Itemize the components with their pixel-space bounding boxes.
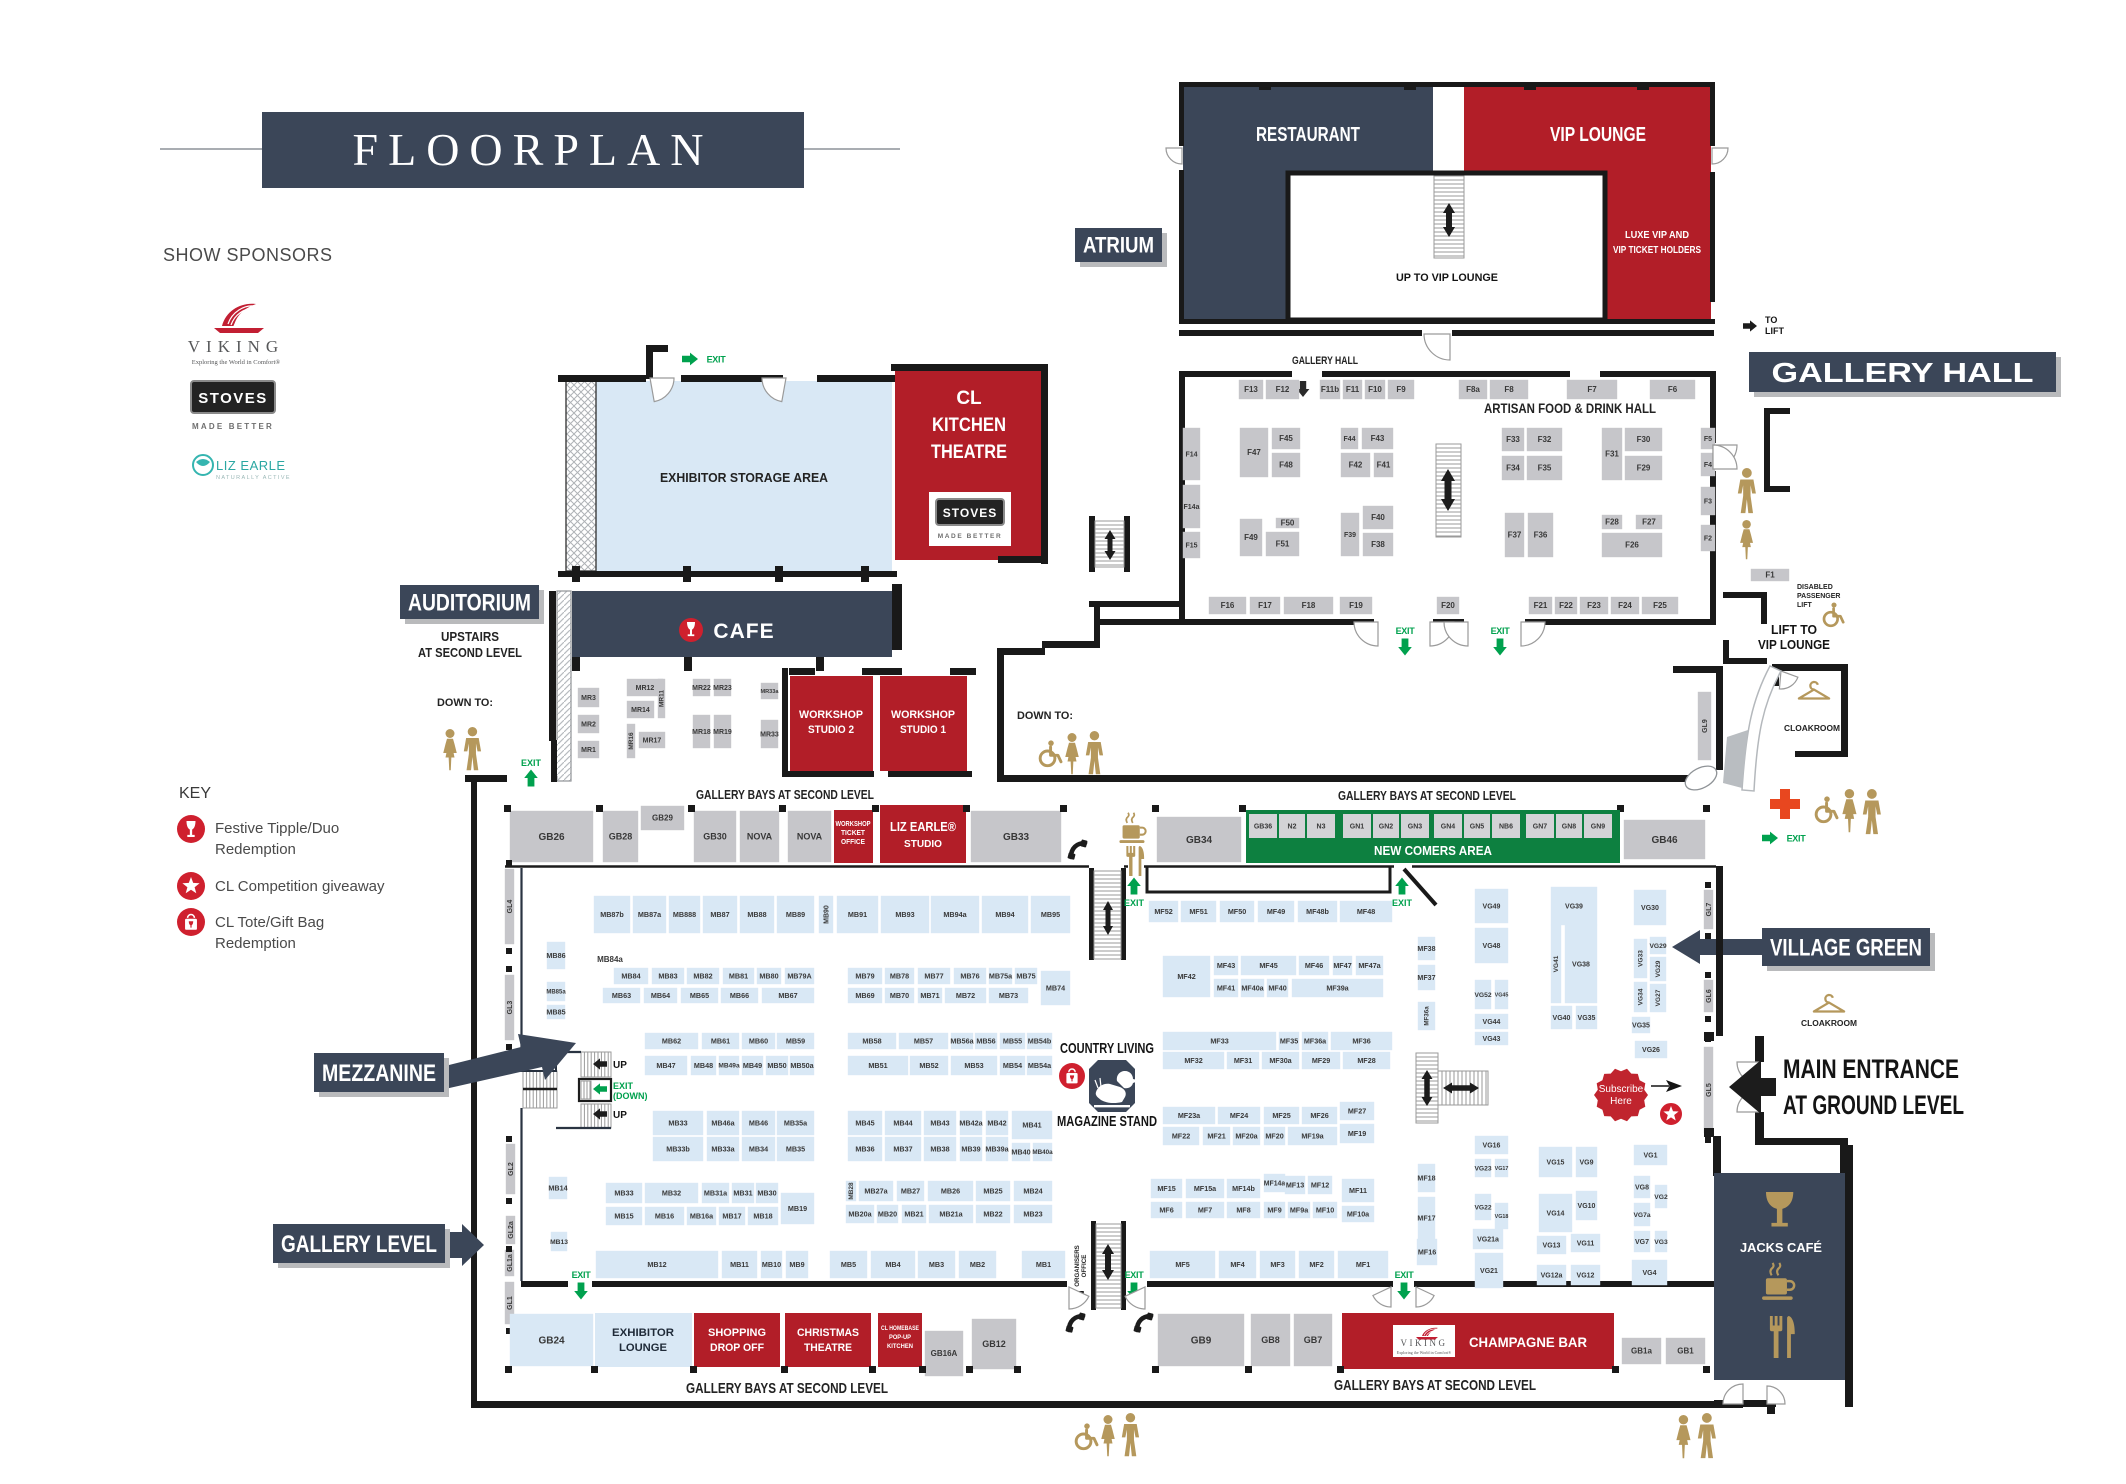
- svg-text:MR33a: MR33a: [760, 689, 779, 695]
- svg-text:EXIT: EXIT: [1396, 626, 1416, 636]
- svg-text:MB30: MB30: [757, 1188, 776, 1197]
- svg-text:F33: F33: [1506, 435, 1520, 444]
- svg-text:MB57: MB57: [914, 1036, 933, 1045]
- svg-text:GB33: GB33: [1003, 832, 1030, 843]
- svg-text:POP-UP: POP-UP: [889, 1334, 912, 1341]
- svg-text:Subscribe: Subscribe: [1599, 1084, 1644, 1095]
- svg-text:MB53: MB53: [964, 1061, 983, 1070]
- svg-text:LIFT: LIFT: [1765, 326, 1784, 336]
- svg-text:MB70: MB70: [890, 991, 909, 1000]
- svg-text:MF36a: MF36a: [1304, 1036, 1327, 1045]
- svg-text:MB63: MB63: [612, 991, 631, 1000]
- svg-text:F38: F38: [1371, 540, 1385, 549]
- svg-text:F10: F10: [1368, 385, 1382, 394]
- svg-text:AT SECOND LEVEL: AT SECOND LEVEL: [418, 645, 522, 660]
- svg-text:MF20: MF20: [1265, 1131, 1283, 1140]
- svg-text:CAFE: CAFE: [713, 620, 774, 643]
- svg-text:MB2: MB2: [970, 1260, 985, 1269]
- svg-text:LIFT: LIFT: [1797, 602, 1812, 609]
- svg-text:VG39: VG39: [1565, 903, 1583, 910]
- svg-text:MB59: MB59: [786, 1036, 805, 1045]
- svg-text:MF1: MF1: [1356, 1260, 1370, 1269]
- svg-text:GN1: GN1: [1350, 824, 1365, 831]
- svg-text:VILLAGE GREEN: VILLAGE GREEN: [1770, 934, 1922, 961]
- svg-text:MF30a: MF30a: [1269, 1056, 1292, 1065]
- svg-text:VG48: VG48: [1483, 943, 1501, 950]
- svg-text:MB9: MB9: [789, 1260, 804, 1269]
- svg-text:MF28: MF28: [1357, 1056, 1375, 1065]
- svg-text:MB85: MB85: [546, 1007, 565, 1016]
- svg-text:MB94a: MB94a: [943, 910, 967, 919]
- svg-text:F51: F51: [1276, 540, 1290, 549]
- svg-text:F15: F15: [1185, 542, 1197, 549]
- svg-text:MB50: MB50: [767, 1061, 786, 1070]
- svg-text:MB24: MB24: [1023, 1186, 1042, 1195]
- svg-text:GB1a: GB1a: [1631, 1347, 1652, 1356]
- svg-text:ARTISAN FOOD & DRINK HALL: ARTISAN FOOD & DRINK HALL: [1484, 400, 1656, 416]
- svg-text:MF26: MF26: [1310, 1111, 1328, 1120]
- svg-text:MB40: MB40: [1011, 1147, 1030, 1156]
- svg-text:VIKING: VIKING: [188, 337, 284, 356]
- svg-text:EXIT: EXIT: [1392, 898, 1413, 908]
- svg-text:MB39: MB39: [961, 1144, 980, 1153]
- svg-text:F14a: F14a: [1184, 504, 1200, 511]
- svg-text:THEATRE: THEATRE: [804, 1342, 852, 1354]
- svg-text:F7: F7: [1587, 385, 1597, 394]
- svg-text:MF9a: MF9a: [1290, 1205, 1309, 1214]
- svg-text:F41: F41: [1377, 461, 1391, 470]
- svg-text:GL7: GL7: [1706, 903, 1713, 917]
- svg-text:MB44: MB44: [893, 1118, 912, 1127]
- svg-text:F31: F31: [1605, 450, 1619, 459]
- svg-text:MF5: MF5: [1175, 1260, 1189, 1269]
- svg-text:F23: F23: [1587, 601, 1601, 610]
- svg-text:MB23: MB23: [1023, 1209, 1042, 1218]
- svg-text:UP TO VIP LOUNGE: UP TO VIP LOUNGE: [1396, 272, 1498, 284]
- svg-text:VG27: VG27: [1655, 989, 1662, 1006]
- svg-text:F47: F47: [1247, 448, 1261, 457]
- svg-text:VG12a: VG12a: [1541, 1272, 1563, 1279]
- svg-text:Exploring the World in Comfort: Exploring the World in Comfort®: [1397, 1350, 1451, 1355]
- svg-text:F40: F40: [1371, 513, 1385, 522]
- svg-text:MB38: MB38: [930, 1144, 949, 1153]
- svg-text:MB50a: MB50a: [790, 1061, 814, 1070]
- svg-text:VG16: VG16: [1483, 1142, 1501, 1149]
- svg-text:N2: N2: [1288, 824, 1297, 831]
- svg-text:MAGAZINE STAND: MAGAZINE STAND: [1057, 1113, 1157, 1130]
- svg-text:MADE BETTER: MADE BETTER: [938, 533, 1003, 540]
- svg-text:MR17: MR17: [643, 737, 662, 744]
- svg-text:NATURALLY ACTIVE: NATURALLY ACTIVE: [216, 475, 291, 481]
- svg-text:MB75a: MB75a: [989, 971, 1013, 980]
- svg-text:MB58: MB58: [862, 1036, 881, 1045]
- svg-text:F14: F14: [1185, 451, 1197, 458]
- svg-text:VG18: VG18: [1495, 1214, 1509, 1220]
- svg-text:F29: F29: [1637, 464, 1651, 473]
- svg-text:VG13: VG13: [1543, 1242, 1561, 1249]
- svg-text:GB24: GB24: [538, 1335, 565, 1346]
- svg-text:PASSENGER: PASSENGER: [1797, 593, 1840, 600]
- svg-text:MB78: MB78: [890, 971, 909, 980]
- svg-text:TICKET: TICKET: [841, 830, 866, 837]
- svg-text:MF33: MF33: [1210, 1036, 1228, 1045]
- svg-text:VG33: VG33: [1638, 950, 1645, 967]
- svg-text:GALLERY BAYS AT SECOND LEVEL: GALLERY BAYS AT SECOND LEVEL: [686, 1380, 888, 1397]
- svg-text:MB62: MB62: [662, 1036, 681, 1045]
- svg-text:F2: F2: [1704, 535, 1712, 542]
- svg-text:VIP LOUNGE: VIP LOUNGE: [1550, 124, 1646, 146]
- svg-text:MF14b: MF14b: [1232, 1184, 1255, 1193]
- svg-text:F21: F21: [1534, 601, 1548, 610]
- svg-text:AUDITORIUM: AUDITORIUM: [408, 589, 531, 616]
- svg-text:MB4: MB4: [885, 1260, 900, 1269]
- svg-text:VIKING: VIKING: [1401, 1338, 1448, 1348]
- svg-text:LOUNGE: LOUNGE: [619, 1342, 667, 1354]
- svg-text:F8: F8: [1504, 385, 1514, 394]
- svg-text:MF48: MF48: [1357, 907, 1375, 916]
- svg-text:GB29: GB29: [652, 814, 673, 823]
- svg-text:MR16: MR16: [628, 732, 635, 750]
- svg-text:UPSTAIRS: UPSTAIRS: [441, 629, 499, 644]
- svg-text:SHOPPING: SHOPPING: [708, 1327, 766, 1339]
- svg-text:F4: F4: [1704, 462, 1712, 469]
- svg-text:EXIT: EXIT: [1124, 898, 1145, 908]
- svg-text:GALLERY BAYS AT SECOND LEVEL: GALLERY BAYS AT SECOND LEVEL: [1334, 1377, 1536, 1394]
- svg-text:GL5: GL5: [1706, 1083, 1713, 1097]
- svg-text:MB36: MB36: [855, 1144, 874, 1153]
- svg-text:F12: F12: [1276, 385, 1290, 394]
- svg-text:EXHIBITOR: EXHIBITOR: [612, 1327, 674, 1339]
- svg-text:MF39a: MF39a: [1326, 983, 1349, 992]
- svg-text:MF19: MF19: [1348, 1129, 1366, 1138]
- svg-text:MF15: MF15: [1157, 1184, 1175, 1193]
- svg-text:F43: F43: [1371, 434, 1385, 443]
- svg-text:MB74: MB74: [1046, 983, 1065, 992]
- svg-text:VIP TICKET HOLDERS: VIP TICKET HOLDERS: [1613, 245, 1701, 256]
- svg-text:FLOORPLAN: FLOORPLAN: [353, 124, 714, 175]
- svg-text:F25: F25: [1653, 601, 1667, 610]
- svg-text:VG8: VG8: [1635, 1184, 1649, 1191]
- svg-text:GALLERY LEVEL: GALLERY LEVEL: [281, 1231, 437, 1258]
- svg-text:MB21a: MB21a: [939, 1209, 963, 1218]
- svg-text:GB16A: GB16A: [931, 1349, 958, 1358]
- svg-text:MF10: MF10: [1316, 1205, 1334, 1214]
- svg-text:MF38: MF38: [1417, 945, 1435, 953]
- svg-text:MF43: MF43: [1217, 961, 1235, 970]
- svg-text:VG26: VG26: [1642, 1047, 1660, 1054]
- svg-text:MF27: MF27: [1348, 1106, 1366, 1115]
- svg-text:F50: F50: [1281, 519, 1295, 528]
- svg-text:MF9: MF9: [1267, 1205, 1281, 1214]
- svg-text:VG40: VG40: [1553, 1015, 1571, 1022]
- svg-text:MB13: MB13: [550, 1239, 568, 1246]
- svg-text:MB82: MB82: [693, 971, 712, 980]
- svg-text:MF52: MF52: [1154, 907, 1172, 916]
- svg-text:Redemption: Redemption: [215, 935, 296, 952]
- svg-text:MB71: MB71: [920, 991, 939, 1000]
- svg-text:MF24: MF24: [1230, 1111, 1248, 1120]
- svg-text:EXIT: EXIT: [1787, 834, 1807, 844]
- svg-text:MB31: MB31: [733, 1188, 752, 1197]
- svg-text:GB7: GB7: [1304, 1335, 1323, 1345]
- svg-text:MR18: MR18: [692, 729, 711, 736]
- svg-text:VG45: VG45: [1495, 992, 1509, 998]
- svg-text:F22: F22: [1559, 601, 1573, 610]
- svg-text:F44: F44: [1343, 436, 1355, 443]
- svg-text:NEW COMERS AREA: NEW COMERS AREA: [1374, 844, 1492, 858]
- svg-text:MF49: MF49: [1267, 907, 1285, 916]
- svg-text:MF46: MF46: [1305, 961, 1323, 970]
- svg-text:UP: UP: [613, 1060, 627, 1071]
- svg-text:VG1: VG1: [1643, 1152, 1657, 1159]
- svg-text:STOVES: STOVES: [198, 390, 268, 407]
- svg-text:CHRISTMAS: CHRISTMAS: [797, 1327, 859, 1339]
- svg-text:DOWN TO:: DOWN TO:: [1017, 710, 1073, 722]
- svg-text:Festive Tipple/Duo: Festive Tipple/Duo: [215, 820, 339, 837]
- svg-text:MR14: MR14: [631, 707, 650, 714]
- svg-text:MB35: MB35: [786, 1144, 805, 1153]
- svg-text:LIZ EARLE®: LIZ EARLE®: [890, 819, 956, 834]
- svg-text:F11: F11: [1346, 385, 1360, 394]
- svg-text:MB33: MB33: [614, 1188, 633, 1197]
- svg-text:F19: F19: [1349, 601, 1363, 610]
- svg-text:MB87b: MB87b: [600, 910, 624, 919]
- svg-text:GALLERY BAYS AT SECOND LEVEL: GALLERY BAYS AT SECOND LEVEL: [1338, 788, 1516, 803]
- svg-text:MB54b: MB54b: [1028, 1036, 1052, 1045]
- svg-text:EXIT: EXIT: [521, 758, 542, 768]
- svg-text:MB37: MB37: [893, 1144, 912, 1153]
- svg-text:MB26: MB26: [941, 1186, 960, 1195]
- svg-text:EXIT: EXIT: [1125, 1270, 1145, 1280]
- svg-text:MB81: MB81: [729, 971, 748, 980]
- svg-text:GL2a: GL2a: [508, 1221, 515, 1239]
- svg-text:MB34: MB34: [749, 1144, 768, 1153]
- svg-text:GALLERY HALL: GALLERY HALL: [1772, 357, 2034, 388]
- svg-text:VG35: VG35: [1578, 1015, 1596, 1022]
- svg-text:MB91: MB91: [848, 910, 867, 919]
- svg-text:Here: Here: [1610, 1096, 1632, 1107]
- svg-text:MB77: MB77: [924, 971, 943, 980]
- svg-text:MB49: MB49: [743, 1061, 762, 1070]
- svg-text:MB87: MB87: [710, 910, 729, 919]
- svg-text:MF22: MF22: [1172, 1131, 1190, 1140]
- svg-text:THEATRE: THEATRE: [931, 442, 1007, 463]
- svg-text:MB12: MB12: [647, 1260, 666, 1269]
- svg-text:F39: F39: [1344, 532, 1356, 539]
- svg-text:DOWN TO:: DOWN TO:: [437, 697, 493, 709]
- svg-text:EXIT: EXIT: [613, 1081, 634, 1091]
- svg-text:F11b: F11b: [1321, 385, 1339, 394]
- svg-text:KEY: KEY: [179, 785, 211, 802]
- svg-text:F5: F5: [1704, 436, 1712, 443]
- svg-text:MF18: MF18: [1417, 1174, 1435, 1182]
- svg-text:VG11: VG11: [1577, 1240, 1595, 1247]
- svg-text:MB79: MB79: [855, 971, 874, 980]
- svg-text:GB12: GB12: [982, 1339, 1006, 1349]
- svg-text:GB28: GB28: [609, 832, 633, 842]
- svg-text:MF40: MF40: [1268, 983, 1286, 992]
- svg-text:VG3: VG3: [1654, 1239, 1668, 1246]
- svg-text:STUDIO 2: STUDIO 2: [808, 724, 854, 736]
- svg-text:MB33a: MB33a: [711, 1144, 735, 1153]
- svg-text:VG43: VG43: [1483, 1036, 1501, 1043]
- svg-text:F16: F16: [1221, 601, 1235, 610]
- svg-text:GN4: GN4: [1441, 824, 1456, 831]
- svg-text:MF50: MF50: [1228, 907, 1246, 916]
- svg-text:GL1: GL1: [507, 1296, 514, 1310]
- svg-text:AT GROUND LEVEL: AT GROUND LEVEL: [1783, 1090, 1964, 1120]
- svg-text:MR3: MR3: [581, 695, 596, 702]
- svg-text:VG49: VG49: [1483, 903, 1501, 910]
- svg-text:MB41: MB41: [1022, 1120, 1041, 1129]
- svg-text:F48: F48: [1279, 461, 1293, 470]
- svg-text:KITCHEN: KITCHEN: [932, 415, 1006, 436]
- svg-text:F27: F27: [1642, 518, 1656, 527]
- svg-text:MF11: MF11: [1349, 1186, 1367, 1195]
- svg-text:MB43: MB43: [930, 1118, 949, 1127]
- svg-text:F36: F36: [1534, 531, 1548, 540]
- svg-text:ATRIUM: ATRIUM: [1083, 233, 1154, 258]
- svg-text:MB16a: MB16a: [690, 1211, 714, 1220]
- svg-text:F49: F49: [1244, 533, 1258, 542]
- svg-text:MB80: MB80: [759, 971, 778, 980]
- svg-text:VG30: VG30: [1641, 905, 1659, 912]
- svg-text:Exploring the World in Comfort: Exploring the World in Comfort®: [192, 359, 280, 366]
- svg-text:VG15: VG15: [1547, 1159, 1565, 1166]
- svg-text:MF29: MF29: [1312, 1056, 1330, 1065]
- svg-text:F6: F6: [1668, 385, 1678, 394]
- svg-text:F37: F37: [1508, 531, 1522, 540]
- svg-text:MF6: MF6: [1159, 1205, 1173, 1214]
- svg-text:NB6: NB6: [1499, 824, 1513, 831]
- svg-text:OFFICE: OFFICE: [841, 839, 865, 846]
- svg-text:VG17: VG17: [1495, 1166, 1509, 1172]
- svg-text:MF23a: MF23a: [1178, 1111, 1201, 1120]
- svg-text:MB60: MB60: [749, 1036, 768, 1045]
- svg-text:F42: F42: [1349, 461, 1363, 470]
- svg-text:MB40a: MB40a: [1032, 1149, 1053, 1156]
- svg-text:VG21: VG21: [1480, 1268, 1498, 1275]
- svg-text:MB20a: MB20a: [848, 1209, 872, 1218]
- svg-text:TO: TO: [1765, 315, 1777, 325]
- svg-text:MB75: MB75: [1016, 971, 1035, 980]
- svg-text:MF40a: MF40a: [1241, 983, 1264, 992]
- svg-text:STOVES: STOVES: [943, 506, 997, 520]
- svg-text:MF17: MF17: [1417, 1214, 1435, 1222]
- svg-text:DISABLED: DISABLED: [1797, 584, 1833, 591]
- svg-text:MB79A: MB79A: [787, 971, 811, 980]
- svg-text:MB73: MB73: [999, 991, 1018, 1000]
- svg-text:MB45: MB45: [855, 1118, 874, 1127]
- svg-text:CL Tote/Gift Bag: CL Tote/Gift Bag: [215, 914, 324, 931]
- svg-text:MB27: MB27: [901, 1186, 920, 1195]
- svg-text:GB26: GB26: [538, 832, 565, 843]
- svg-text:MB65: MB65: [690, 991, 709, 1000]
- svg-text:F28: F28: [1605, 518, 1619, 527]
- svg-text:MF47a: MF47a: [1358, 961, 1381, 970]
- svg-text:MF20a: MF20a: [1235, 1131, 1258, 1140]
- svg-text:GN3: GN3: [1408, 824, 1423, 831]
- svg-text:MF45: MF45: [1259, 961, 1277, 970]
- svg-text:MB15: MB15: [614, 1211, 633, 1220]
- svg-text:WORKSHOP: WORKSHOP: [891, 709, 955, 721]
- svg-text:MB39a: MB39a: [985, 1144, 1009, 1153]
- svg-text:CLOAKROOM: CLOAKROOM: [1801, 1019, 1857, 1028]
- svg-text:MB42: MB42: [987, 1118, 1006, 1127]
- svg-text:MB33b: MB33b: [666, 1144, 690, 1153]
- svg-text:EXIT: EXIT: [1491, 626, 1511, 636]
- svg-text:GL6: GL6: [1706, 989, 1713, 1003]
- svg-text:GN8: GN8: [1562, 824, 1577, 831]
- svg-text:MB10: MB10: [762, 1260, 781, 1269]
- svg-text:MB31a: MB31a: [704, 1188, 728, 1197]
- svg-text:GN5: GN5: [1470, 824, 1485, 831]
- svg-text:MF3: MF3: [1270, 1260, 1284, 1269]
- svg-text:EXIT: EXIT: [1395, 1270, 1415, 1280]
- svg-text:LIFT TO: LIFT TO: [1771, 622, 1817, 637]
- svg-text:VG14: VG14: [1547, 1210, 1565, 1217]
- svg-text:MB89: MB89: [786, 910, 805, 919]
- svg-text:MB55: MB55: [1003, 1036, 1022, 1045]
- svg-text:KITCHEN: KITCHEN: [887, 1343, 913, 1350]
- svg-text:VG38: VG38: [1572, 961, 1590, 968]
- svg-text:DROP OFF: DROP OFF: [710, 1342, 764, 1354]
- svg-text:F1: F1: [1765, 571, 1775, 580]
- svg-text:MB66: MB66: [730, 991, 749, 1000]
- svg-text:MR12: MR12: [636, 685, 655, 692]
- svg-text:VG10: VG10: [1578, 1203, 1596, 1210]
- svg-text:VG12: VG12: [1577, 1272, 1595, 1279]
- svg-text:MB61: MB61: [711, 1036, 730, 1045]
- svg-text:GN2: GN2: [1379, 824, 1394, 831]
- svg-text:MB17: MB17: [722, 1211, 741, 1220]
- svg-text:MB52: MB52: [919, 1061, 938, 1070]
- svg-text:MB20: MB20: [878, 1209, 897, 1218]
- svg-text:MB25: MB25: [983, 1186, 1002, 1195]
- svg-text:COUNTRY LIVING: COUNTRY LIVING: [1060, 1040, 1154, 1057]
- svg-text:MB11: MB11: [730, 1260, 749, 1269]
- svg-text:MF25: MF25: [1272, 1111, 1290, 1120]
- svg-text:MB33: MB33: [668, 1118, 687, 1127]
- svg-text:MF7: MF7: [1198, 1205, 1212, 1214]
- svg-text:MB5: MB5: [841, 1260, 856, 1269]
- svg-text:GB1: GB1: [1677, 1347, 1694, 1356]
- svg-text:EXHIBITOR STORAGE AREA: EXHIBITOR STORAGE AREA: [660, 470, 829, 485]
- svg-text:MF31: MF31: [1234, 1056, 1252, 1065]
- svg-text:MF16: MF16: [1418, 1247, 1436, 1256]
- svg-text:F13: F13: [1244, 385, 1258, 394]
- svg-text:UP: UP: [613, 1110, 627, 1121]
- svg-text:MB86: MB86: [546, 951, 565, 960]
- svg-text:F34: F34: [1506, 464, 1520, 473]
- svg-text:MB72: MB72: [956, 991, 975, 1000]
- svg-text:MF41: MF41: [1217, 983, 1235, 992]
- svg-text:CL HOMEBASE: CL HOMEBASE: [881, 1325, 920, 1332]
- svg-text:MB85a: MB85a: [546, 990, 566, 996]
- svg-text:ORGANISERS: ORGANISERS: [1074, 1245, 1081, 1287]
- svg-text:MF32: MF32: [1184, 1056, 1202, 1065]
- svg-text:MR19: MR19: [713, 729, 732, 736]
- svg-text:GL4: GL4: [507, 900, 514, 914]
- svg-text:MF48b: MF48b: [1306, 907, 1329, 916]
- svg-text:VG7: VG7: [1635, 1239, 1649, 1246]
- svg-text:MB64: MB64: [651, 991, 670, 1000]
- svg-text:MF12: MF12: [1311, 1180, 1329, 1189]
- svg-text:CL Competition giveaway: CL Competition giveaway: [215, 878, 385, 895]
- svg-text:MEZZANINE: MEZZANINE: [322, 1060, 436, 1087]
- svg-text:MF15a: MF15a: [1194, 1184, 1217, 1193]
- svg-text:MB54a: MB54a: [1028, 1061, 1052, 1070]
